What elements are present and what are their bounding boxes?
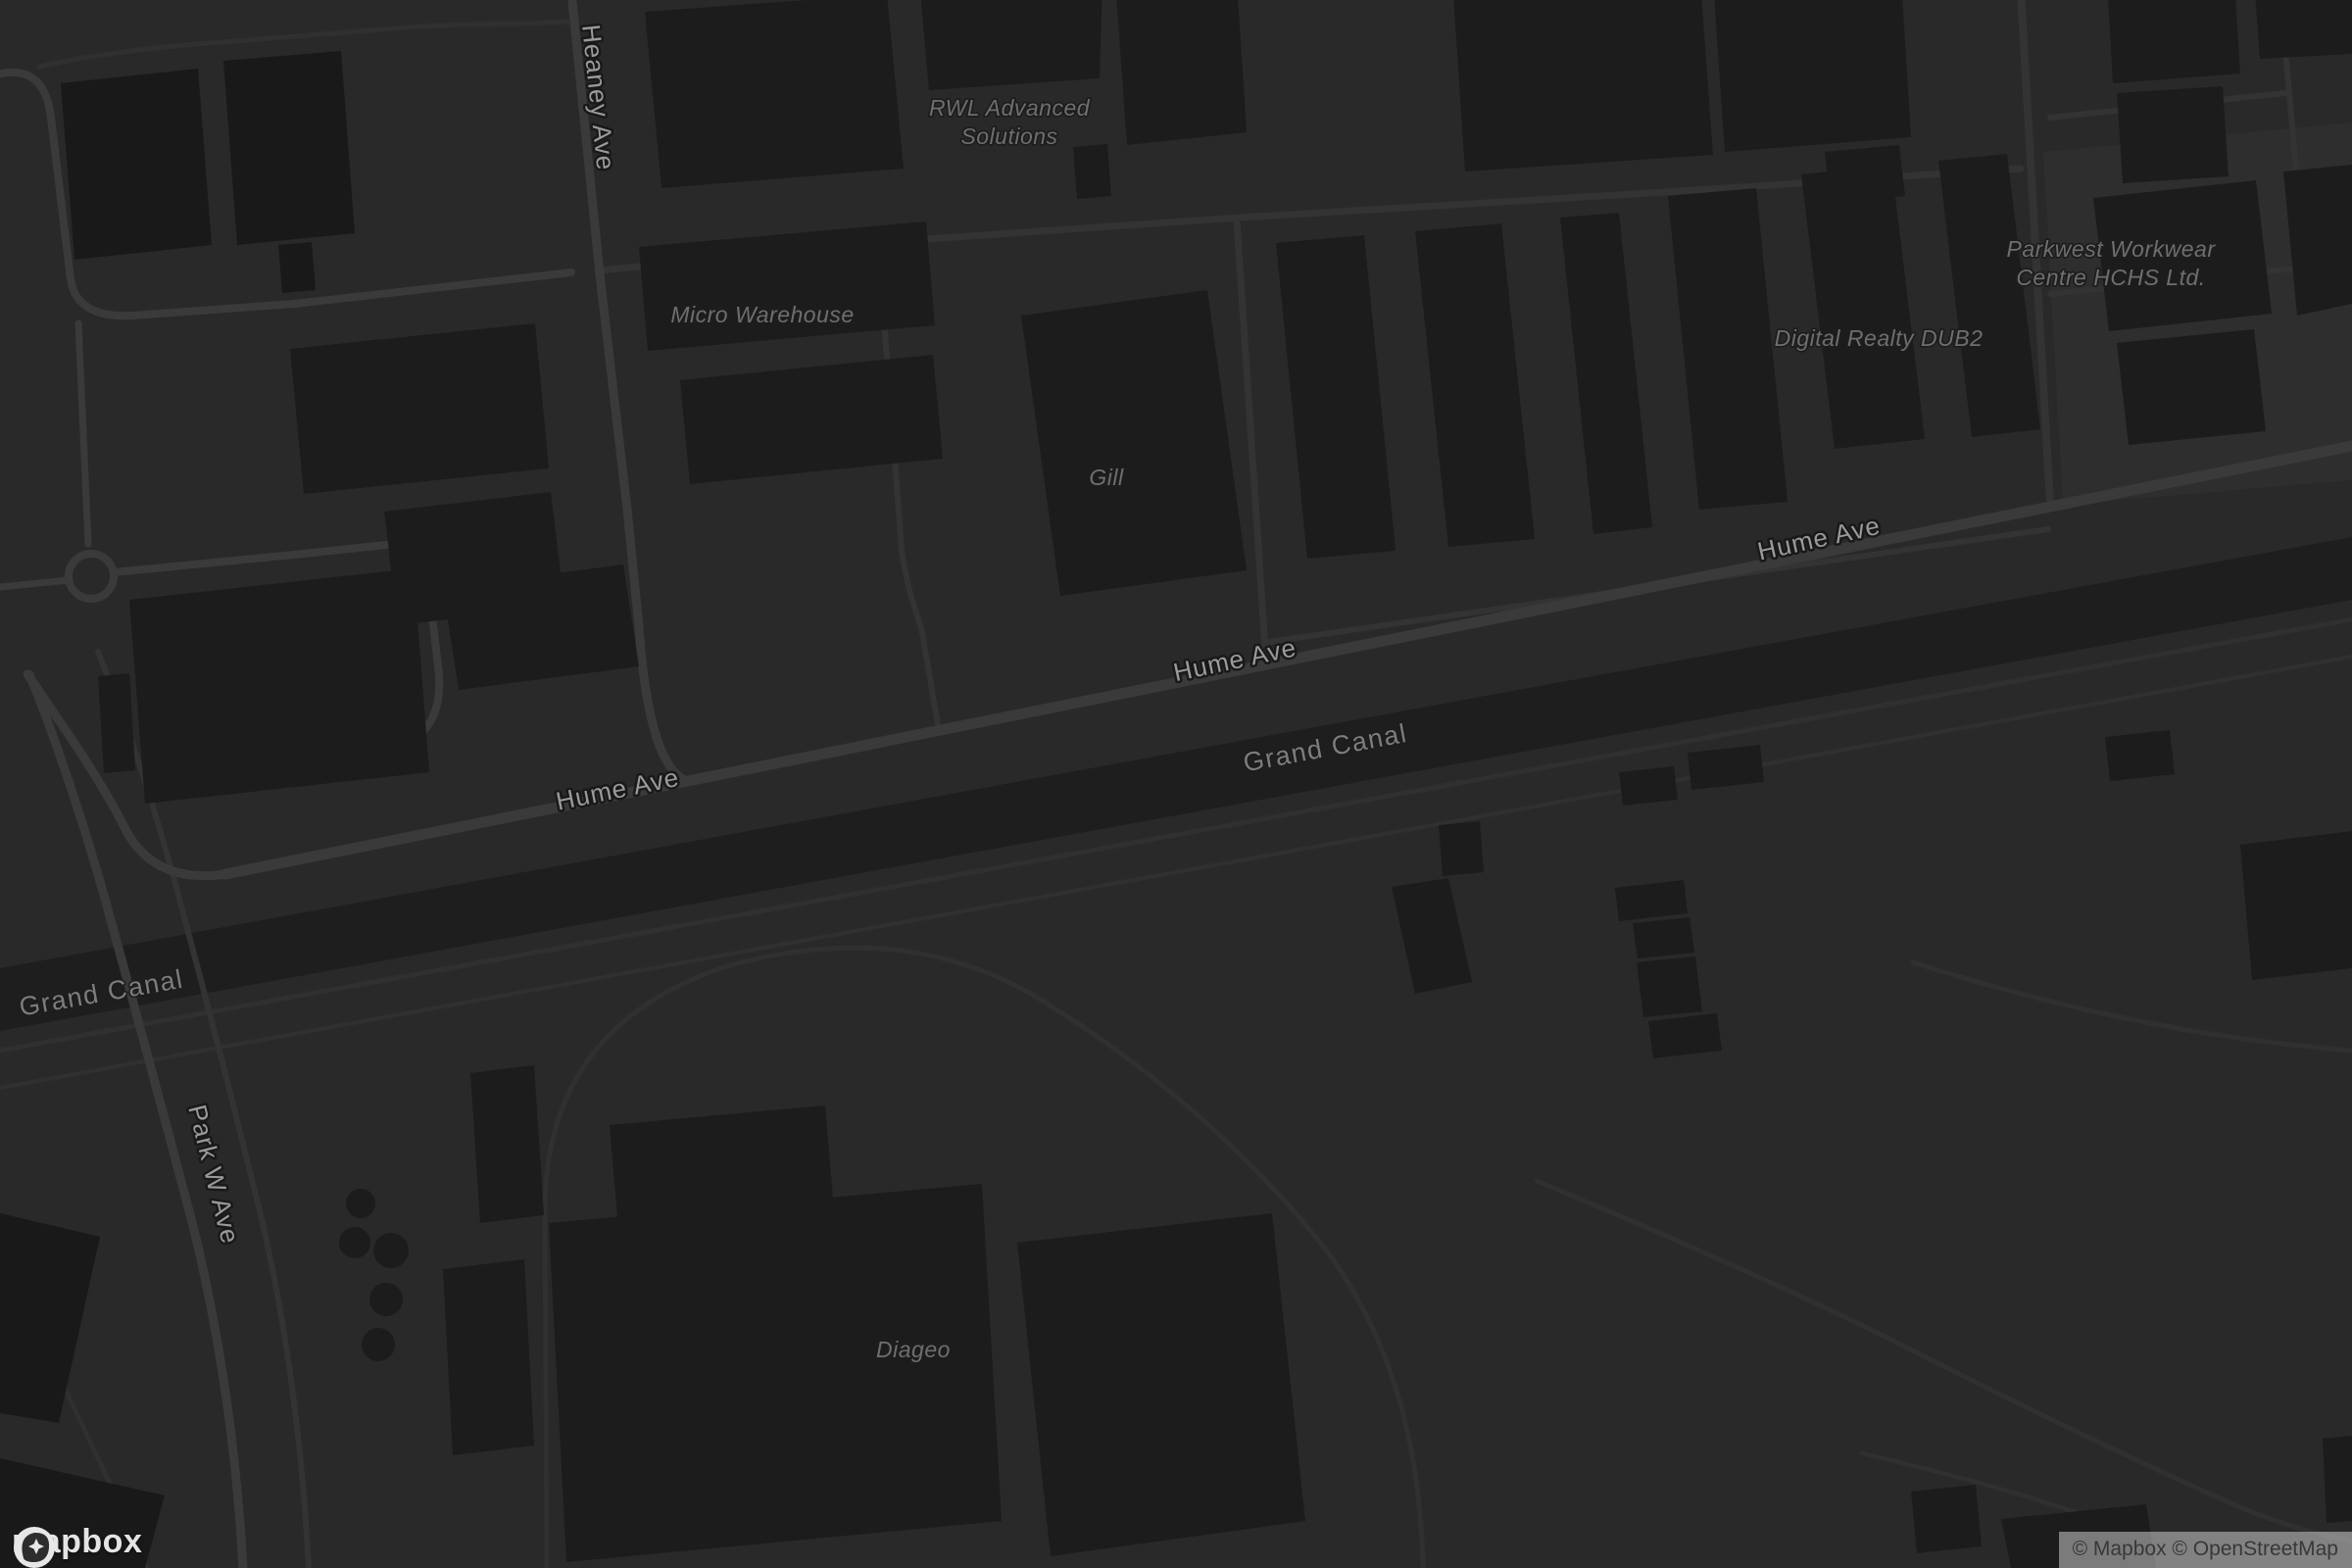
building [1439, 821, 1484, 876]
building [1911, 1485, 1982, 1553]
building [2254, 0, 2352, 59]
mapbox-logo-icon [12, 1525, 57, 1568]
building [1073, 144, 1111, 199]
building [290, 323, 549, 494]
poi-label-digital-realty-dub2: Digital Realty DUB2 [1775, 325, 1984, 351]
storage-tank [362, 1328, 395, 1361]
building [1688, 745, 1764, 790]
poi-label-micro-warehouse: Micro Warehouse [670, 302, 854, 327]
building [2240, 831, 2352, 980]
building [919, 0, 1102, 90]
building [129, 568, 429, 804]
building [1619, 766, 1678, 806]
mapbox-logo[interactable]: mapbox [12, 1525, 142, 1558]
building [2107, 0, 2240, 83]
storage-tank [339, 1227, 370, 1258]
building [470, 1065, 544, 1223]
building-diageo [549, 1184, 1002, 1562]
building [2323, 1436, 2352, 1523]
poi-label-rwl-line2: Solutions [960, 123, 1057, 149]
building [278, 242, 316, 293]
building [1017, 1213, 1305, 1556]
building [2117, 86, 2229, 183]
building [1713, 0, 1911, 152]
poi-label-gill: Gill [1089, 465, 1124, 490]
poi-label-rwl-line1: RWL Advanced [929, 95, 1091, 121]
building [1648, 1013, 1722, 1058]
building [1452, 0, 1713, 171]
map-canvas[interactable]: Heaney Ave Hume Ave Hume Ave Hume Ave Pa… [0, 0, 2352, 1568]
building [1633, 917, 1694, 958]
building [2105, 730, 2175, 781]
building-gill [1021, 290, 1247, 596]
building [645, 0, 904, 188]
building [223, 51, 355, 245]
map-svg: Heaney Ave Hume Ave Hume Ave Hume Ave Pa… [0, 0, 2352, 1568]
building [2117, 329, 2266, 445]
storage-tank [373, 1233, 409, 1268]
building [61, 69, 212, 260]
building [98, 673, 135, 773]
building [1637, 956, 1702, 1017]
storage-tank [369, 1283, 403, 1316]
map-attribution[interactable]: © Mapbox © OpenStreetMap [2059, 1532, 2352, 1568]
building [443, 1259, 534, 1455]
storage-tank [346, 1189, 375, 1218]
building [1115, 0, 1247, 145]
attribution-text: © Mapbox © OpenStreetMap [2073, 1538, 2338, 1560]
poi-label-diageo: Diageo [876, 1337, 951, 1362]
poi-label-parkwest-line1: Parkwest Workwear [2007, 236, 2217, 262]
poi-label-parkwest-line2: Centre HCHS Ltd. [2016, 265, 2205, 290]
